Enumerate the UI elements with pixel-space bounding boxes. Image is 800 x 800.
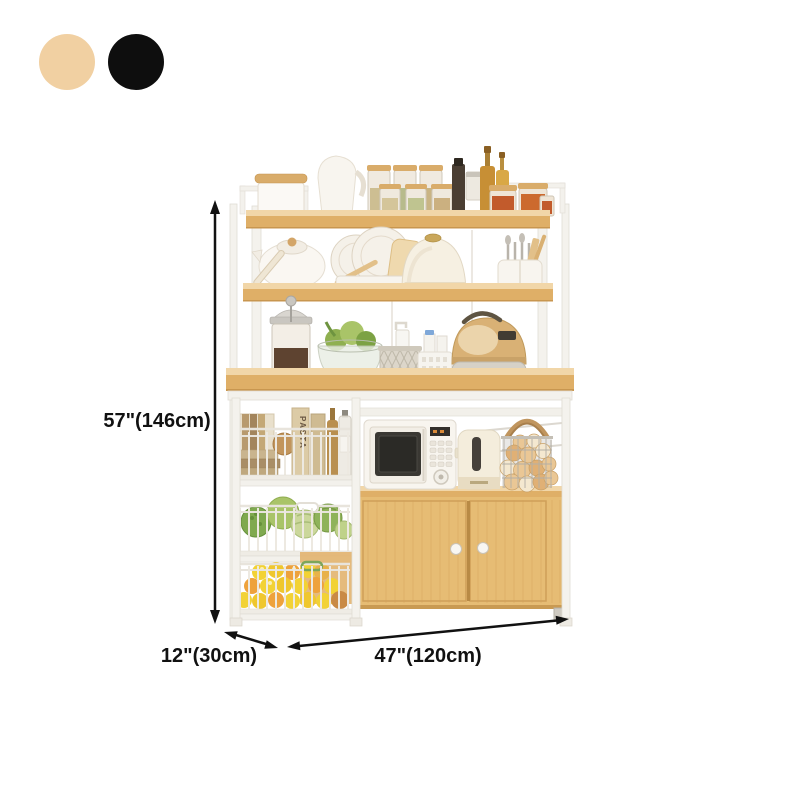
microwave — [364, 420, 456, 489]
color-swatch-beige[interactable] — [39, 34, 95, 90]
cabinet — [356, 486, 568, 620]
product-illustration: PASTA — [226, 146, 574, 626]
arrowhead-right — [264, 640, 278, 649]
depth-dimension: 12"(30cm) — [161, 631, 278, 667]
teapot — [252, 238, 325, 290]
food-box — [311, 414, 325, 478]
width-dimension-label: 47"(120cm) — [374, 645, 481, 667]
color-swatch-black[interactable] — [108, 34, 164, 90]
door-gap — [467, 501, 470, 601]
width-dimension: 47"(120cm) — [287, 616, 569, 667]
toaster — [455, 430, 500, 489]
middle-shelf-items — [252, 227, 547, 290]
arrowhead-down — [210, 610, 220, 624]
mid-back-rail — [358, 408, 568, 416]
foot — [350, 618, 362, 626]
arrowhead-left — [287, 641, 300, 650]
french-press — [270, 296, 312, 375]
countertop — [226, 368, 574, 400]
arrowhead-up — [210, 200, 220, 214]
top-shelf-items — [255, 146, 554, 216]
depth-dimension-label: 12"(30cm) — [161, 645, 257, 667]
tower-shelf-bar-1 — [233, 480, 355, 486]
color-swatches — [39, 34, 164, 90]
sauce-bottle — [452, 158, 465, 214]
door-knob-right[interactable] — [478, 543, 489, 554]
arrowhead-left — [224, 631, 238, 640]
foot — [230, 618, 242, 626]
height-dimension: 57"(146cm) — [103, 200, 220, 624]
spice-jars — [367, 165, 453, 214]
product-page: PASTA — [0, 0, 800, 800]
door-knob-left[interactable] — [451, 544, 462, 555]
basket-tower: PASTA — [233, 408, 355, 620]
top-shelf-board — [246, 210, 550, 229]
height-dimension-label: 57"(146cm) — [103, 410, 210, 432]
canister — [255, 174, 307, 214]
pitcher — [318, 156, 364, 214]
bread-basket — [500, 421, 558, 492]
tower-shelf-bar-3 — [233, 614, 355, 620]
